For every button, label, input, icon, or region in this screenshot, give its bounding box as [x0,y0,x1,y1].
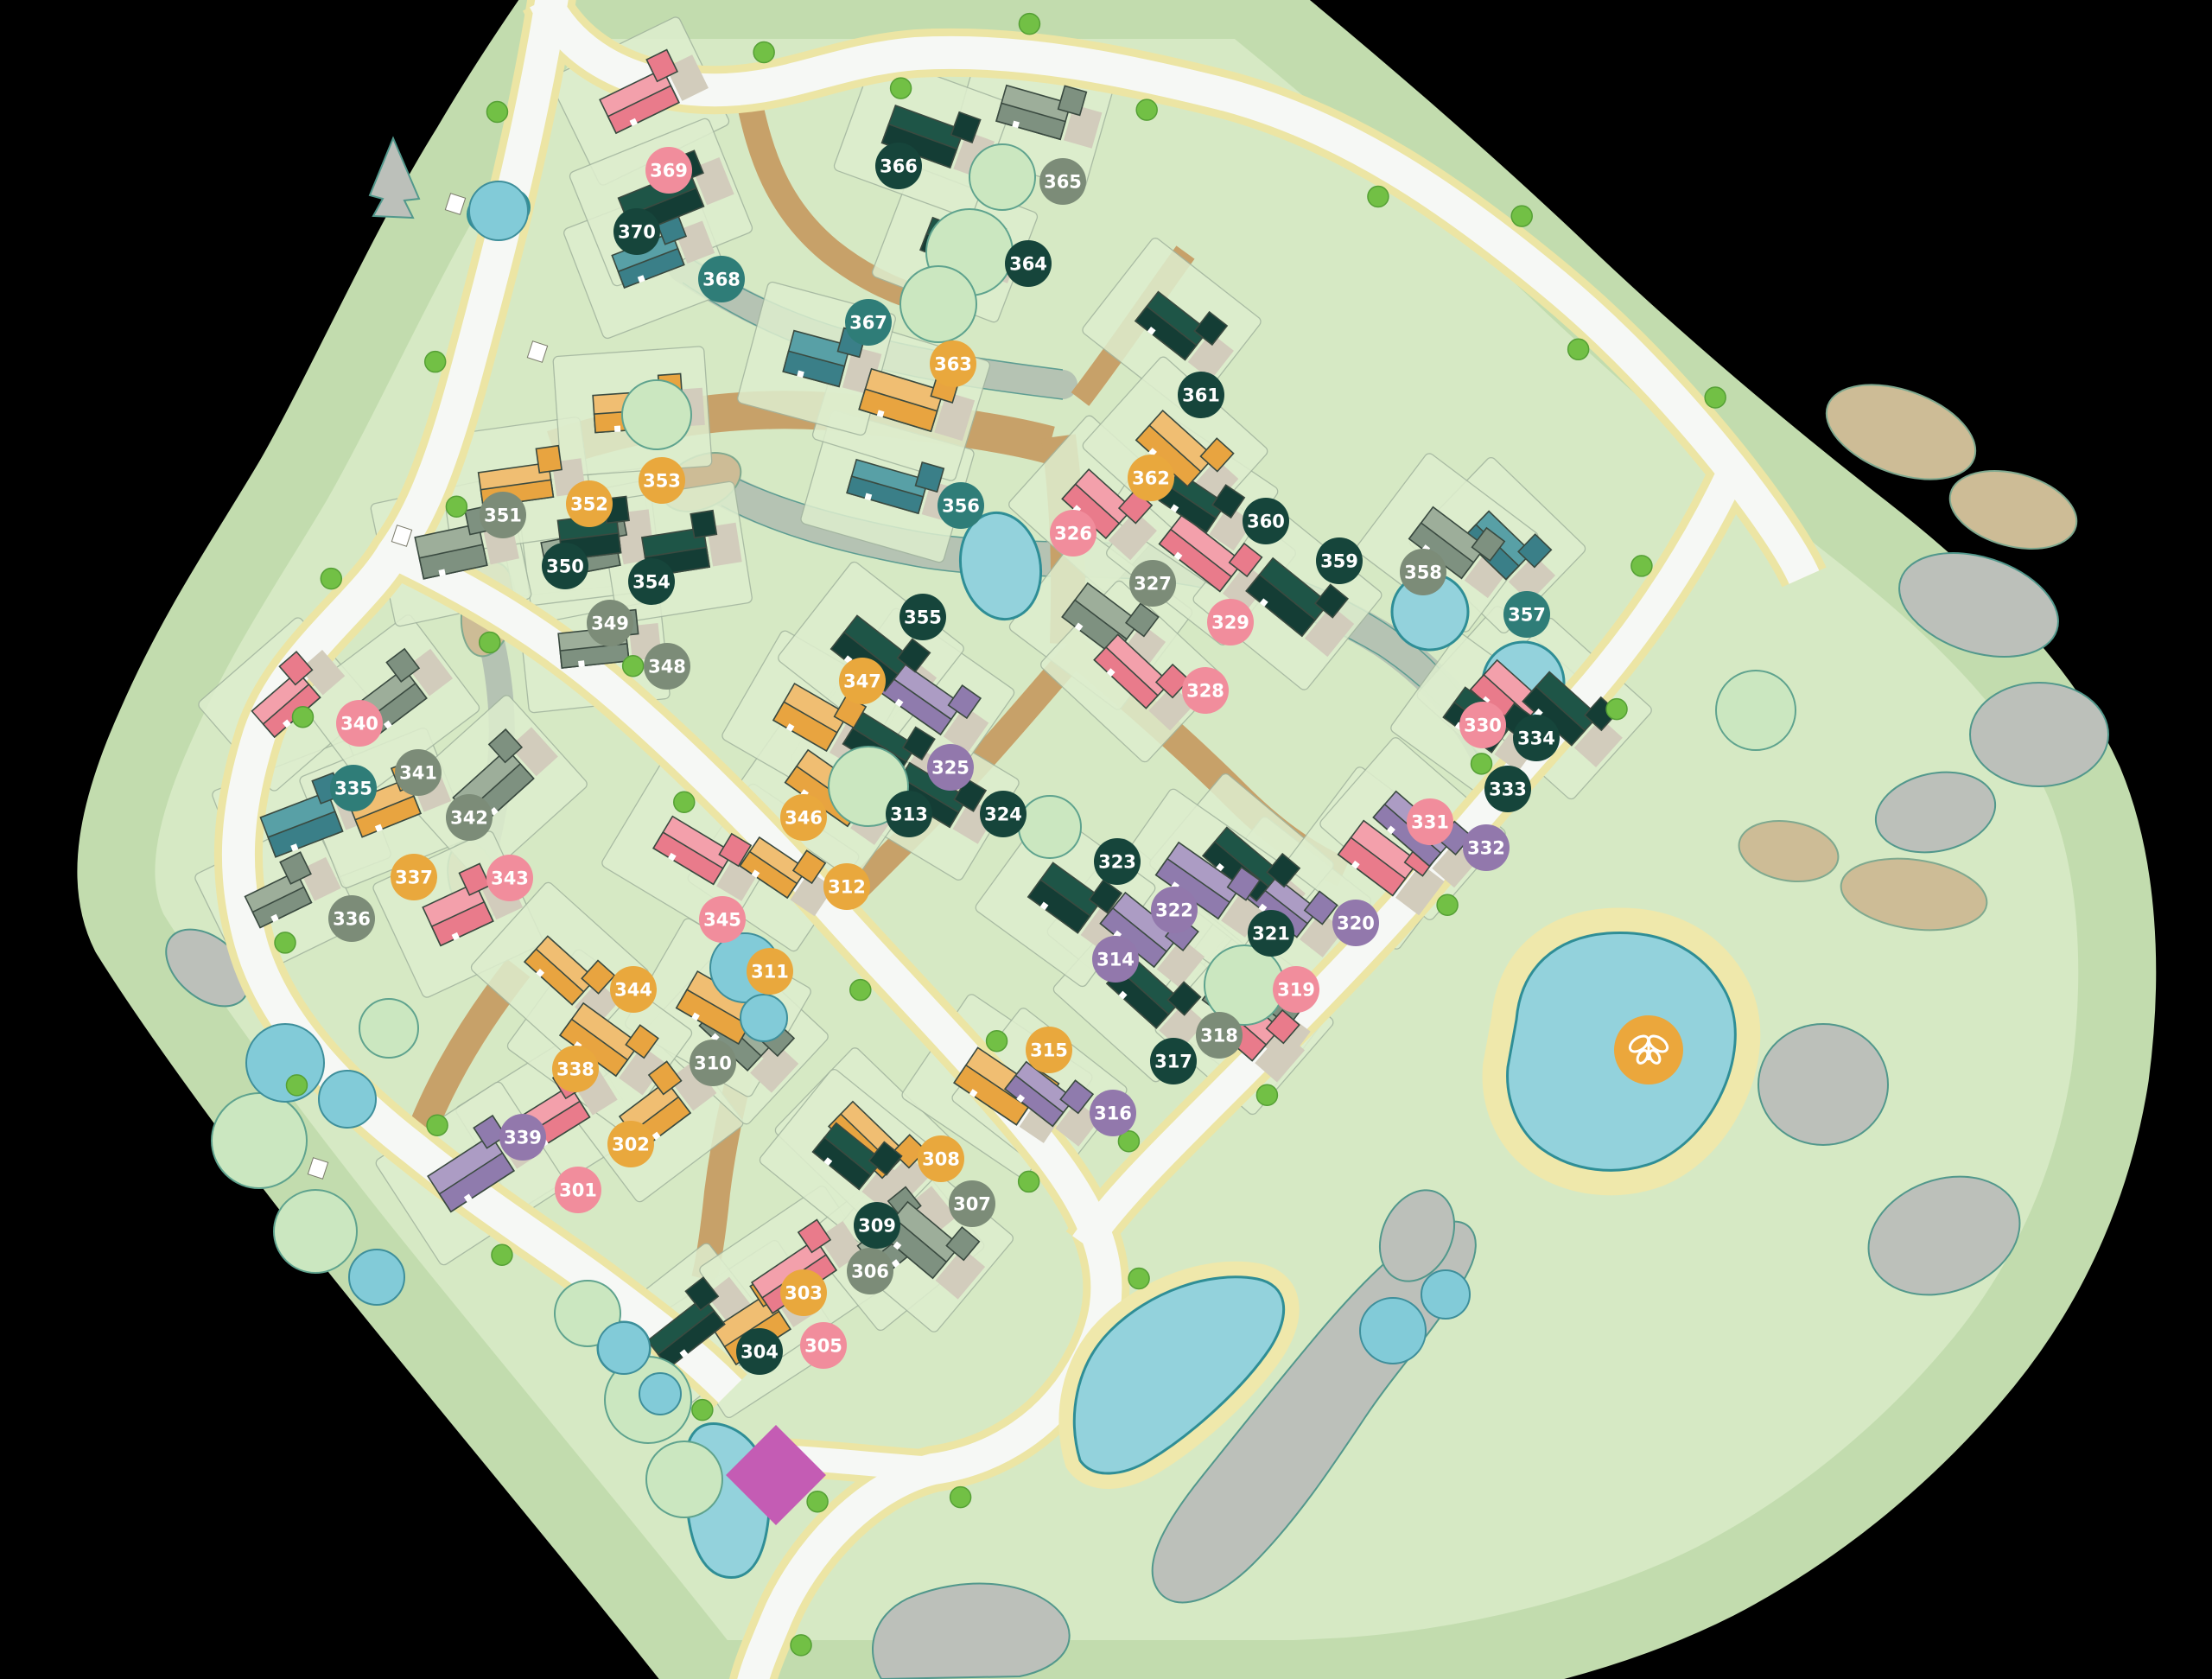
plot-badge-311[interactable]: 311 [747,948,793,995]
door-icon [614,426,620,432]
street-tree [425,352,446,372]
plot-badge-307[interactable]: 307 [949,1180,995,1227]
street-tree [623,656,644,677]
plot-badge-335[interactable]: 335 [330,765,377,811]
plot-badge-318[interactable]: 318 [1196,1012,1243,1059]
plot-badge-310[interactable]: 310 [690,1040,736,1086]
street-tree [1136,99,1157,120]
plot-badge-303[interactable]: 303 [780,1269,827,1316]
plot-badge-314[interactable]: 314 [1092,936,1139,983]
blue-tree [1421,1270,1470,1319]
plot-badge-308[interactable]: 308 [918,1135,964,1182]
plot-badge-332[interactable]: 332 [1463,824,1510,871]
plot-badge-326[interactable]: 326 [1050,510,1096,556]
blue-tree [598,1322,650,1374]
plot-badge-341[interactable]: 341 [395,749,442,796]
plot-badge-350[interactable]: 350 [542,543,588,589]
street-tree [891,78,912,99]
street-tree [480,632,500,652]
plot-badge-365[interactable]: 365 [1039,158,1086,205]
plot-badge-357[interactable]: 357 [1503,591,1550,638]
street-tree [1471,754,1492,774]
tree-canopy [274,1190,357,1273]
plot-badge-309[interactable]: 309 [854,1202,900,1249]
blue-tree [319,1071,376,1128]
street-tree [321,569,341,589]
street-tree [1019,14,1039,35]
door-icon [439,569,446,576]
plot-badge-313[interactable]: 313 [886,791,932,837]
street-tree [1256,1084,1277,1105]
plot-badge-330[interactable]: 330 [1459,702,1506,748]
plot-badge-363[interactable]: 363 [930,340,976,387]
street-tree [1019,1171,1039,1192]
plot-badge-337[interactable]: 337 [391,854,437,900]
plot-badge-302[interactable]: 302 [607,1121,654,1167]
plot-badge-338[interactable]: 338 [552,1046,599,1092]
plot-badge-339[interactable]: 339 [499,1114,546,1161]
plot-badge-366[interactable]: 366 [875,143,922,189]
street-tree [674,792,695,812]
plot-badge-344[interactable]: 344 [610,966,657,1013]
tree-canopy [646,1441,722,1517]
street-tree [492,1244,512,1265]
tree-canopy [359,999,418,1058]
plot-badge-353[interactable]: 353 [639,457,685,504]
blue-tree [246,1024,324,1102]
plot-badge-351[interactable]: 351 [480,492,526,538]
plot-badge-356[interactable]: 356 [938,482,984,529]
plot-badge-346[interactable]: 346 [780,794,827,841]
plot-badge-316[interactable]: 316 [1090,1090,1136,1136]
plot-badge-304[interactable]: 304 [736,1328,783,1375]
plot-badge-348[interactable]: 348 [644,643,690,690]
plot-badge-367[interactable]: 367 [845,299,892,346]
plot-badge-328[interactable]: 328 [1182,667,1229,714]
plot-badge-364[interactable]: 364 [1005,240,1052,287]
plot-badge-315[interactable]: 315 [1026,1027,1072,1073]
plot-badge-369[interactable]: 369 [645,147,692,194]
street-tree [286,1075,307,1096]
street-tree [950,1487,971,1508]
street-tree [275,932,296,953]
street-tree [753,42,774,63]
plot-badge-340[interactable]: 340 [336,700,383,747]
blue-tree [639,1373,681,1415]
plot-badge-329[interactable]: 329 [1207,599,1254,646]
plot-badge-342[interactable]: 342 [446,794,493,841]
tree-canopy [1716,671,1796,750]
plot-badge-322[interactable]: 322 [1151,887,1198,933]
plot-badge-349[interactable]: 349 [587,600,633,646]
street-tree [292,707,313,728]
blue-tree [469,181,528,240]
plot-badge-305[interactable]: 305 [800,1322,847,1369]
plot-badge-334[interactable]: 334 [1513,715,1560,761]
plot-badge-345[interactable]: 345 [699,896,746,943]
street-tree [486,102,507,123]
street-tree [1606,699,1627,720]
plot-badge-327[interactable]: 327 [1129,560,1176,607]
plot-badge-336[interactable]: 336 [328,895,375,942]
tree-canopy [900,266,976,342]
street-tree [1368,187,1389,207]
plot-badge-368[interactable]: 368 [698,256,745,302]
street-tree [807,1491,828,1512]
street-tree [987,1031,1007,1052]
plot-badge-321[interactable]: 321 [1248,910,1294,957]
street-tree [427,1115,448,1135]
plot-badge-301[interactable]: 301 [555,1167,601,1213]
plot-badge-333[interactable]: 333 [1484,766,1531,812]
butterfly-marker[interactable] [1614,1015,1683,1084]
tree-canopy [622,380,691,449]
plot-badge-361[interactable]: 361 [1178,372,1224,418]
tree-canopy [969,144,1035,210]
street-tree [1631,556,1652,576]
plot-badge-319[interactable]: 319 [1273,966,1319,1013]
plot-badge-359[interactable]: 359 [1316,537,1363,584]
plot-badge-317[interactable]: 317 [1150,1038,1197,1084]
plot-badge-343[interactable]: 343 [486,855,533,901]
blue-tree [1360,1298,1426,1364]
street-tree [692,1400,713,1421]
street-tree [791,1635,811,1656]
plot-badge-355[interactable]: 355 [899,594,946,640]
street-tree [1705,387,1726,408]
street-tree [446,496,467,517]
street-tree [1568,339,1589,359]
street-tree [1437,894,1458,915]
plot-badge-360[interactable]: 360 [1243,498,1289,544]
street-tree [850,980,871,1001]
tree-canopy [1019,796,1081,858]
plot-badge-312[interactable]: 312 [823,863,870,910]
plot-badge-325[interactable]: 325 [927,744,974,791]
blue-tree [741,995,787,1041]
plot-badge-331[interactable]: 331 [1407,798,1453,845]
plot-badge-347[interactable]: 347 [839,658,886,704]
plot-badge-354[interactable]: 354 [628,558,675,605]
plot-badge-324[interactable]: 324 [980,791,1027,837]
plot-badge-320[interactable]: 320 [1332,900,1379,946]
plot-badge-306[interactable]: 306 [847,1248,893,1294]
site-plan-map: 3013023033043053063073083093103113123133… [0,0,2212,1679]
street-tree [1128,1268,1149,1288]
site-plan-stage: 3013023033043053063073083093103113123133… [0,0,2212,1679]
plot-badge-323[interactable]: 323 [1094,838,1141,885]
plot-badge-370[interactable]: 370 [613,208,660,255]
door-icon [578,660,585,667]
street-tree [1511,206,1532,226]
blue-tree [349,1250,404,1305]
plot-badge-362[interactable]: 362 [1128,455,1174,501]
tree-canopy [212,1093,307,1188]
plot-badge-352[interactable]: 352 [566,480,613,527]
plot-badge-358[interactable]: 358 [1400,549,1446,595]
